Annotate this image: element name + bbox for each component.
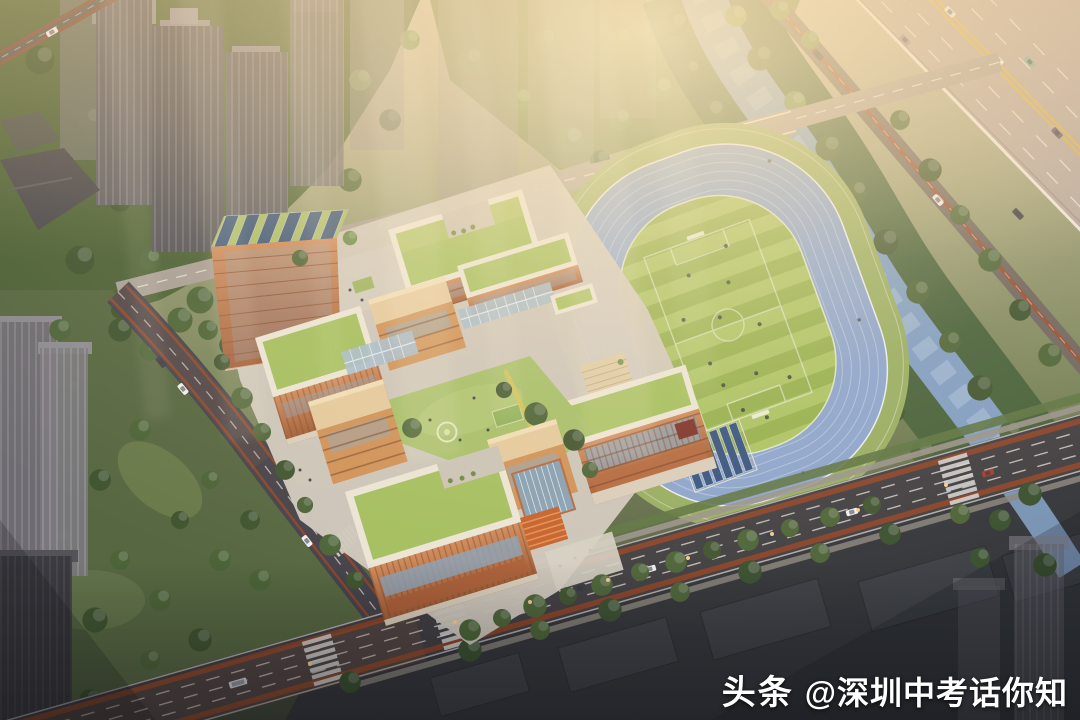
rendering-canvas — [0, 0, 1080, 720]
aerial-rendering-school-campus: 头条 @深圳中考话你知 — [0, 0, 1080, 720]
watermark: 头条 @深圳中考话你知 — [722, 665, 1068, 714]
watermark-brand: 头条 — [722, 665, 794, 714]
vignette — [0, 0, 1080, 720]
watermark-handle: @深圳中考话你知 — [805, 668, 1068, 714]
